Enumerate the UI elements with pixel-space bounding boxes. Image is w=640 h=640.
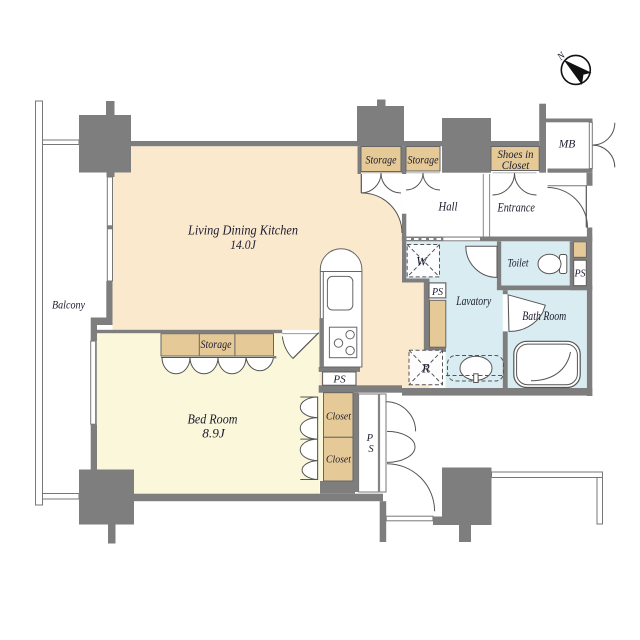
svg-text:Storage: Storage — [366, 153, 398, 167]
svg-text:Balcony: Balcony — [52, 300, 86, 312]
svg-text:MB: MB — [558, 139, 576, 151]
svg-text:Storage: Storage — [408, 153, 440, 167]
svg-text:Lavatory: Lavatory — [455, 294, 491, 308]
svg-text:Closet: Closet — [326, 453, 352, 465]
svg-text:Toilet: Toilet — [508, 255, 530, 269]
svg-text:P: P — [366, 433, 374, 444]
svg-text:Storage: Storage — [201, 337, 233, 351]
svg-text:Closet: Closet — [326, 410, 352, 422]
svg-text:Entrance: Entrance — [497, 201, 536, 215]
svg-text:Closet: Closet — [502, 160, 530, 172]
svg-text:PS: PS — [431, 287, 443, 298]
svg-text:S: S — [368, 444, 374, 455]
svg-text:PS: PS — [332, 374, 346, 386]
svg-text:8.9J: 8.9J — [202, 426, 226, 441]
svg-text:PS: PS — [573, 269, 585, 280]
svg-text:R: R — [421, 361, 430, 375]
svg-text:14.0J: 14.0J — [230, 237, 257, 252]
svg-text:Bath Room: Bath Room — [522, 309, 566, 323]
svg-text:W: W — [416, 254, 428, 269]
svg-text:Hall: Hall — [438, 200, 458, 214]
